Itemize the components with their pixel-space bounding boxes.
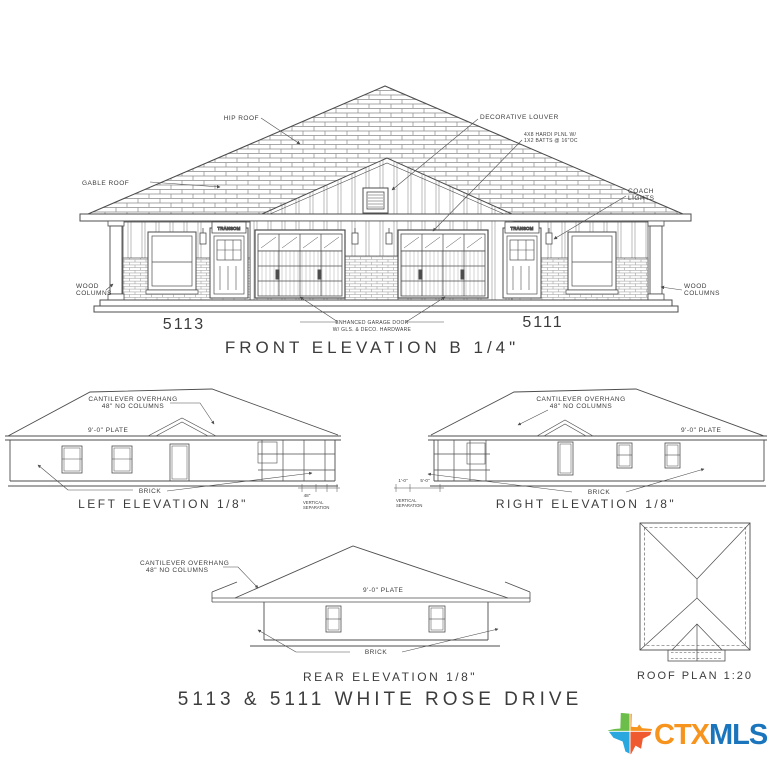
roof-plan-title: ROOF PLAN 1:20 bbox=[637, 670, 753, 682]
label-cantilever-rear-2: 48" NO COLUMNS bbox=[146, 567, 209, 574]
note-vertical-right-2: SEPARATION bbox=[396, 503, 422, 508]
wood-column-right bbox=[648, 221, 664, 300]
right-elevation-drawing: CANTILEVER OVERHANG 48" NO COLUMNS 9'-0"… bbox=[386, 380, 772, 520]
label-wood-columns-left-2: COLUMNS bbox=[76, 290, 112, 297]
label-brick-left: BRICK bbox=[139, 488, 162, 495]
dim-48: 48" bbox=[304, 493, 311, 498]
drawing-sheet: TRANSOM bbox=[0, 0, 772, 768]
roof-plan-gable bbox=[668, 624, 725, 661]
transom-sign-right: TRANSOM bbox=[510, 226, 533, 231]
rear-elevation-title: REAR ELEVATION 1/8" bbox=[303, 670, 477, 684]
transom-sign-left: TRANSOM bbox=[217, 226, 240, 231]
label-brick-right: BRICK bbox=[588, 489, 611, 496]
roof-plan-drawing: ROOF PLAN 1:20 bbox=[615, 505, 772, 690]
label-wood-columns-right-2: COLUMNS bbox=[684, 290, 720, 297]
unit-number-left: 5113 bbox=[163, 316, 205, 333]
front-left-porch: TRANSOM bbox=[123, 222, 250, 300]
label-hip-roof: HIP ROOF bbox=[224, 115, 259, 122]
label-garage-note-2: W/ GLS. & DECO. HARDWARE bbox=[333, 327, 412, 333]
label-wood-columns-right-1: WOOD bbox=[684, 283, 707, 290]
label-plate-rear: 9'-0" PLATE bbox=[363, 587, 404, 594]
dim-1-0: 1'-0" bbox=[398, 478, 408, 483]
front-elevation-title: FRONT ELEVATION B 1/4" bbox=[225, 338, 519, 357]
right-elev-dims bbox=[394, 484, 444, 492]
garage-door-left bbox=[255, 230, 345, 298]
label-wood-columns-left-1: WOOD bbox=[76, 283, 99, 290]
left-elevation-title: LEFT ELEVATION 1/8" bbox=[78, 497, 248, 511]
right-front-door: TRANSOM bbox=[503, 222, 541, 298]
dim-5-0: 5'-0" bbox=[420, 478, 430, 483]
label-plate-left: 9'-0" PLATE bbox=[88, 427, 129, 434]
label-cantilever-right-2: 48" NO COLUMNS bbox=[550, 403, 613, 410]
garage-door-right bbox=[398, 230, 488, 298]
right-elev-windows bbox=[558, 442, 680, 475]
left-elevation-drawing: CANTILEVER OVERHANG 48" NO COLUMNS 9'-0"… bbox=[0, 380, 386, 520]
label-decorative-louver: DECORATIVE LOUVER bbox=[480, 114, 559, 121]
ctxmls-logo: CTXMLS bbox=[606, 712, 767, 758]
decorative-louver-icon bbox=[363, 188, 388, 213]
rear-elevation-drawing: CANTILEVER OVERHANG 48" NO COLUMNS 9'-0"… bbox=[100, 540, 560, 700]
label-cantilever-left-2: 48" NO COLUMNS bbox=[102, 403, 165, 410]
right-elev-patio bbox=[434, 440, 490, 481]
texas-icon bbox=[606, 712, 654, 758]
left-elev-dims bbox=[298, 484, 340, 492]
label-coach-lights-2: LIGHTS bbox=[628, 195, 655, 202]
left-elev-windows bbox=[62, 444, 189, 481]
label-plate-right: 9'-0" PLATE bbox=[681, 427, 722, 434]
label-cantilever-left-1: CANTILEVER OVERHANG bbox=[88, 396, 177, 403]
logo-text-ctx: CTX bbox=[654, 712, 709, 758]
front-elevation-drawing: TRANSOM bbox=[0, 0, 772, 375]
wood-column-left bbox=[108, 221, 124, 300]
label-gable-roof: GABLE ROOF bbox=[82, 180, 129, 187]
label-cantilever-right-1: CANTILEVER OVERHANG bbox=[536, 396, 625, 403]
logo-text-mls: MLS bbox=[709, 712, 767, 758]
brick-pier bbox=[345, 256, 398, 300]
right-screen-window bbox=[566, 232, 618, 294]
label-brick-rear: BRICK bbox=[365, 649, 388, 656]
left-screen-window bbox=[146, 232, 198, 294]
note-vertical-left-2: SEPARATION bbox=[303, 505, 329, 510]
sheet-address: 5113 & 5111 WHITE ROSE DRIVE bbox=[95, 689, 665, 711]
rear-windows bbox=[326, 606, 445, 632]
front-slab bbox=[94, 300, 678, 312]
left-front-door: TRANSOM bbox=[210, 222, 248, 298]
label-siding-note-2: 1X2 BATTS @ 16"OC bbox=[524, 138, 578, 144]
label-coach-lights-1: COACH bbox=[628, 188, 654, 195]
label-cantilever-rear-1: CANTILEVER OVERHANG bbox=[140, 560, 229, 567]
front-right-porch: TRANSOM bbox=[503, 222, 648, 300]
unit-number-right: 5111 bbox=[522, 314, 563, 331]
label-garage-note-1: ENHANCED GARAGE DOOR bbox=[335, 320, 408, 326]
